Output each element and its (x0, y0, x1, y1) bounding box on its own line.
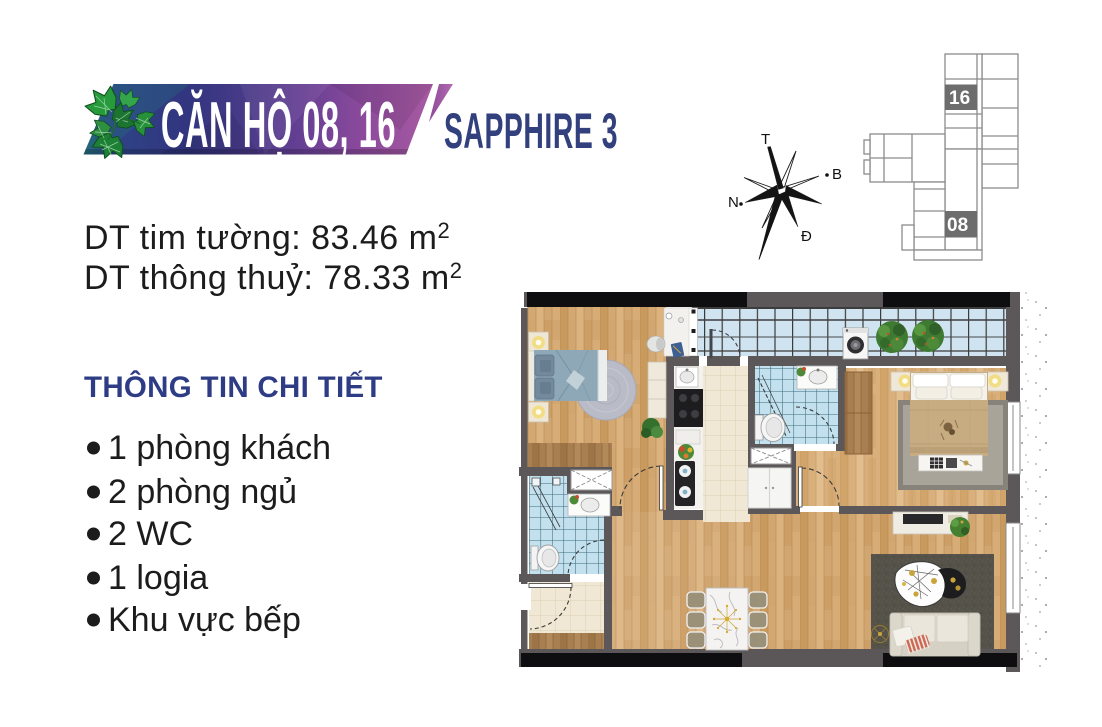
svg-text:1 phòng khách: 1 phòng khách (108, 429, 331, 467)
svg-text:08: 08 (947, 215, 968, 236)
svg-text:T: T (761, 131, 770, 148)
svg-text:1 logia: 1 logia (108, 559, 208, 597)
svg-text:CĂN HỘ 08, 16: CĂN HỘ 08, 16 (161, 88, 396, 161)
svg-text:DT tim tường: 83.46 m2: DT tim tường: 83.46 m2 (84, 218, 450, 257)
svg-text:THÔNG TIN CHI TIẾT: THÔNG TIN CHI TIẾT (84, 370, 383, 404)
svg-text:N: N (728, 194, 739, 211)
svg-text:DT thông thuỷ: 78.33 m2: DT thông thuỷ: 78.33 m2 (84, 258, 462, 297)
svg-text:SAPPHIRE 3: SAPPHIRE 3 (444, 102, 618, 159)
svg-text:2 WC: 2 WC (108, 515, 193, 553)
svg-text:B: B (832, 166, 842, 183)
svg-text:16: 16 (949, 88, 970, 109)
svg-text:Đ: Đ (801, 228, 812, 245)
svg-text:Khu vực bếp: Khu vực bếp (108, 601, 301, 639)
svg-text:2 phòng ngủ: 2 phòng ngủ (108, 473, 297, 511)
